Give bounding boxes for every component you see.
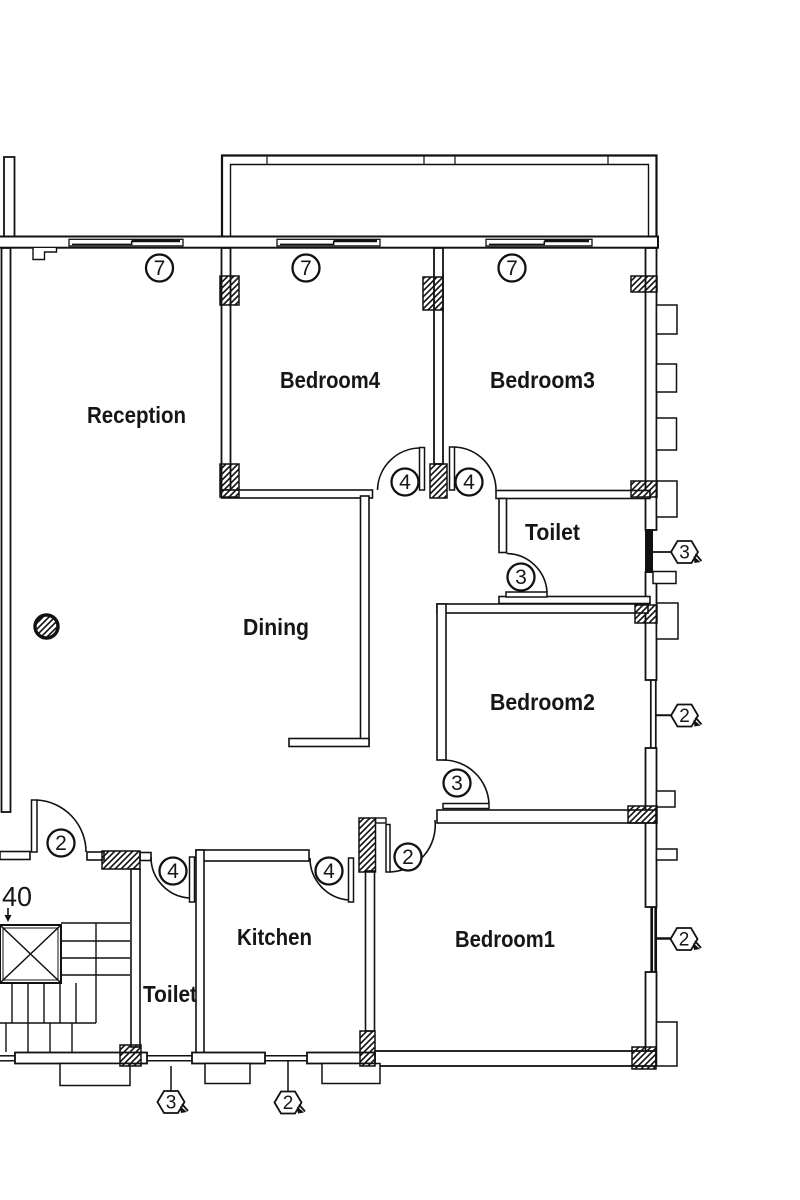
svg-text:Bedroom3: Bedroom3 <box>490 367 595 393</box>
svg-text:2: 2 <box>679 706 690 727</box>
svg-text:2: 2 <box>402 846 414 869</box>
svg-text:2: 2 <box>283 1093 294 1114</box>
svg-text:4: 4 <box>323 860 335 883</box>
svg-text:7: 7 <box>154 257 166 280</box>
svg-text:3: 3 <box>451 772 463 795</box>
svg-text:3: 3 <box>679 543 690 564</box>
svg-text:Dining: Dining <box>243 614 309 640</box>
svg-text:7: 7 <box>506 257 518 280</box>
svg-text:7: 7 <box>300 257 312 280</box>
svg-text:4: 4 <box>167 860 179 883</box>
svg-text:Toilet: Toilet <box>143 981 197 1007</box>
svg-text:2: 2 <box>55 832 67 855</box>
svg-text:3: 3 <box>515 566 527 589</box>
svg-text:Toilet: Toilet <box>525 519 580 545</box>
svg-text:Kitchen: Kitchen <box>237 924 312 950</box>
svg-text:Bedroom1: Bedroom1 <box>455 926 555 952</box>
svg-text:2: 2 <box>679 930 690 951</box>
svg-text:Bedroom4: Bedroom4 <box>280 367 380 393</box>
svg-text:4: 4 <box>463 471 475 494</box>
svg-text:40: 40 <box>2 881 32 912</box>
svg-text:Reception: Reception <box>87 402 186 428</box>
svg-text:4: 4 <box>399 471 411 494</box>
svg-text:Bedroom2: Bedroom2 <box>490 689 595 715</box>
svg-text:3: 3 <box>166 1093 177 1114</box>
